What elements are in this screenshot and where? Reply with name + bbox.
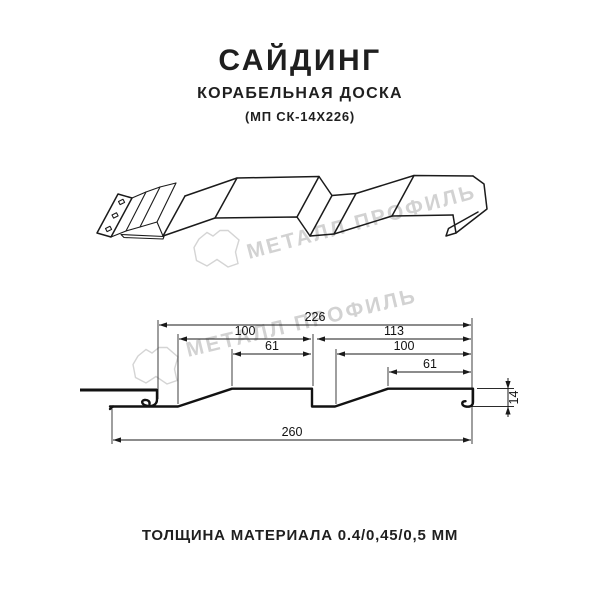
technical-drawing: МЕТАЛЛ ПРОФИЛЬ МЕТАЛЛ ПРОФИЛЬ bbox=[0, 0, 600, 600]
watermark-text: МЕТАЛЛ ПРОФИЛЬ bbox=[244, 180, 479, 263]
nail-hole bbox=[112, 213, 118, 218]
watermark-section: МЕТАЛЛ ПРОФИЛЬ bbox=[133, 284, 419, 384]
dim-label-226: 226 bbox=[305, 310, 326, 324]
dim-label-100-right: 100 bbox=[394, 339, 415, 353]
nail-hole bbox=[106, 226, 112, 231]
main-profile-line bbox=[110, 389, 473, 407]
watermark-3d: МЕТАЛЛ ПРОФИЛЬ bbox=[194, 180, 479, 267]
metall-profil-logo-icon bbox=[133, 348, 178, 385]
metall-profil-logo-icon bbox=[194, 231, 239, 268]
dim-label-260: 260 bbox=[282, 425, 303, 439]
profile-section-outline bbox=[80, 389, 473, 409]
product-sheet: САЙДИНГ КОРАБЕЛЬНАЯ ДОСКА (МП СК-14Х226)… bbox=[0, 0, 600, 600]
dim-label-61-left: 61 bbox=[265, 339, 279, 353]
dim-label-61-right: 61 bbox=[423, 357, 437, 371]
dim-label-100-left: 100 bbox=[235, 324, 256, 338]
extension-lines bbox=[112, 318, 514, 444]
dim-label-14: 14 bbox=[507, 391, 521, 405]
thickness-note: ТОЛЩИНА МАТЕРИАЛА 0.4/0,45/0,5 ММ bbox=[0, 527, 600, 544]
nail-hole bbox=[119, 199, 125, 204]
dim-label-113: 113 bbox=[384, 324, 404, 338]
lock-curl bbox=[142, 390, 157, 406]
